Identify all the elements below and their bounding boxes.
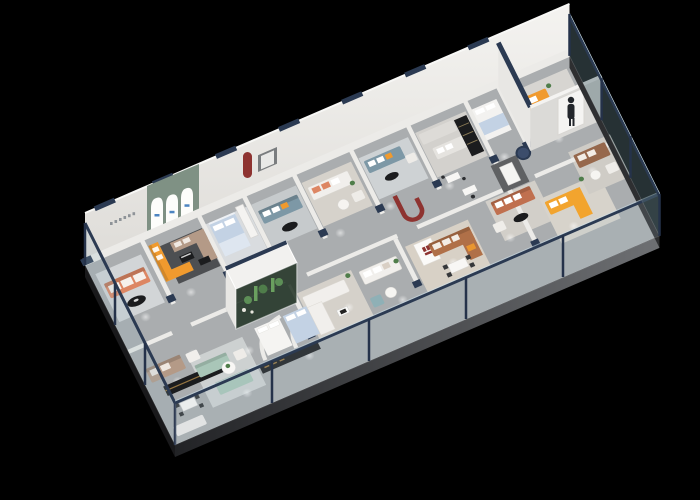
red-wall-niche: [243, 152, 252, 178]
floorplan-canvas: [0, 0, 700, 500]
showroom-render: [0, 0, 700, 500]
